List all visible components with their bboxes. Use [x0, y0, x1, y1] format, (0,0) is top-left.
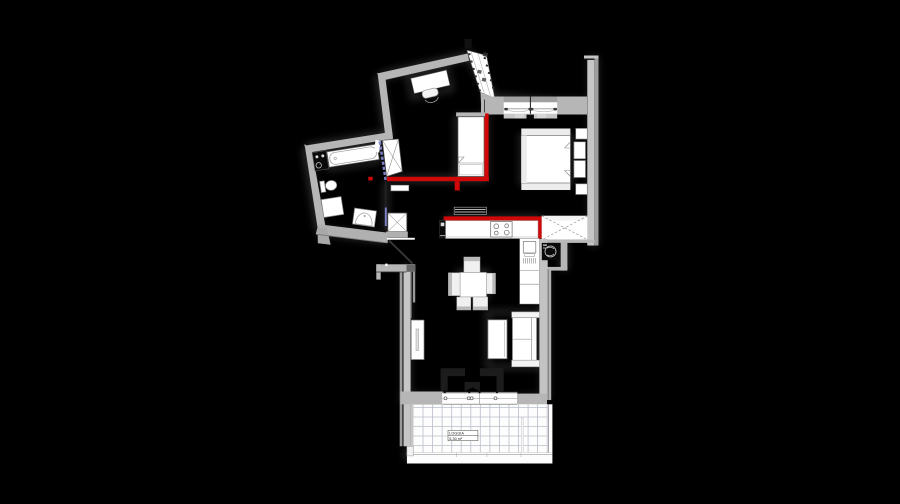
svg-text:LOGGIA: LOGGIA: [449, 432, 464, 436]
svg-text:5.30 m²: 5.30 m²: [449, 437, 463, 441]
